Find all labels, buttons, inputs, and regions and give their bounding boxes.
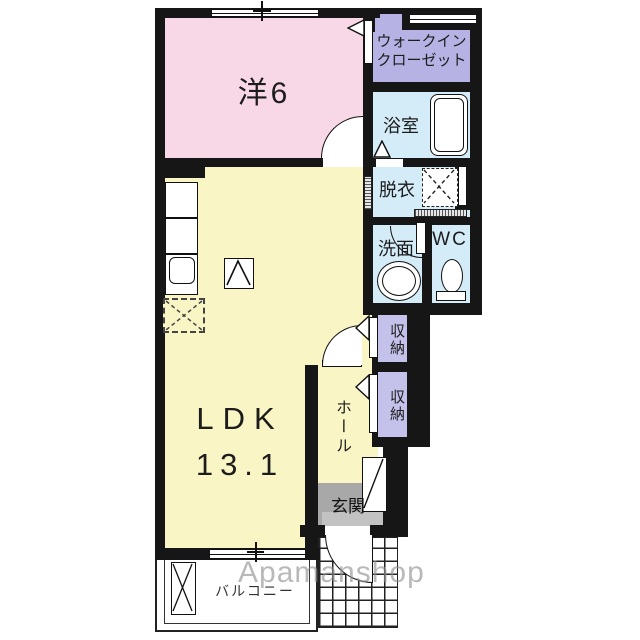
- room-walk-in-closet-label: ウォークイン クローゼット: [373, 32, 470, 70]
- room-ldk-label: LDK 13.1: [165, 396, 315, 488]
- room-western-label: 洋6: [165, 68, 363, 112]
- room-storage-lower-label: 収納: [378, 380, 407, 432]
- floor-plan: 洋6 ウォークイン クローゼット 浴室 脱衣 洗面 WC 収納 収納 LDK 1…: [0, 0, 640, 640]
- door-triangle-storage-lower: [355, 374, 370, 400]
- wall-entrance-bottom-right: [370, 525, 408, 537]
- washing-machine-space: [422, 168, 458, 207]
- room-entrance-label: 玄関: [318, 492, 378, 517]
- refrigerator-space: [163, 298, 205, 333]
- door-triangle-bathroom: [373, 140, 391, 158]
- doorway-western: [323, 158, 363, 167]
- window-closet-north: [410, 14, 476, 24]
- window-tick-south-h: [247, 551, 264, 553]
- sliding-door-wet-left: [364, 176, 372, 210]
- door-triangle-closet: [347, 19, 365, 37]
- door-leaf-storage-upper: [369, 317, 378, 358]
- room-washroom-label: 洗面: [370, 235, 422, 261]
- toilet-bowl: [441, 259, 463, 293]
- ldk-label-line2: 13.1: [196, 447, 284, 482]
- door-triangle-storage-upper: [355, 315, 370, 341]
- wall-storage-divider: [372, 362, 407, 372]
- ldk-label-line1: LDK: [196, 401, 283, 436]
- closet-label-line2: クローゼット: [376, 52, 466, 69]
- window-dressing-east: [458, 166, 467, 206]
- room-dressing-label: 脱衣: [372, 176, 422, 202]
- doorway-bathroom: [376, 159, 403, 167]
- wall-closet-bottom: [363, 82, 482, 92]
- stove: [224, 258, 254, 289]
- door-leaf-closet: [364, 20, 373, 64]
- room-wc-label: WC: [430, 229, 470, 251]
- wall-storage-bottom: [372, 437, 430, 447]
- room-bathroom-label: 浴室: [373, 112, 429, 138]
- bathtub: [430, 94, 468, 156]
- wall-storage-right: [407, 303, 430, 447]
- closet-label-line1: ウォークイン: [376, 33, 466, 50]
- kitchen-sink: [169, 257, 195, 284]
- wall-left: [155, 8, 165, 560]
- toilet-tank: [436, 291, 466, 301]
- wash-basin: [377, 261, 421, 301]
- wall-entrance-bottom-left: [300, 525, 325, 537]
- room-storage-upper-label: 収納: [378, 318, 407, 362]
- watermark: Apamanshop: [238, 556, 425, 590]
- wall-kitchen-step: [162, 167, 205, 178]
- window-tick-north-h: [253, 10, 271, 12]
- sliding-door-dressing: [414, 209, 467, 217]
- door-leaf-storage-lower: [369, 374, 378, 433]
- room-hall-label: ホール: [327, 390, 353, 465]
